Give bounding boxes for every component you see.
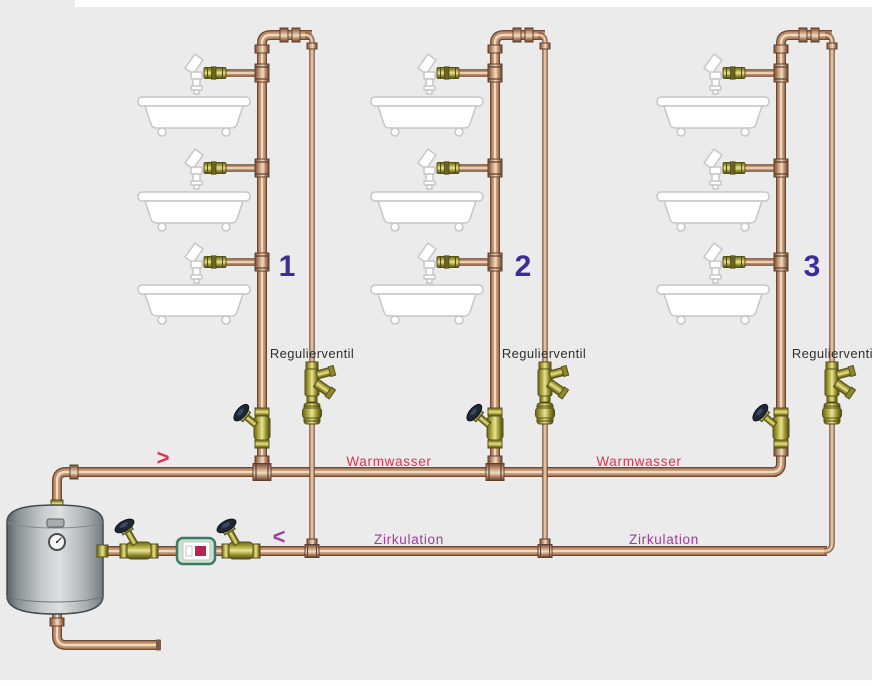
branch-tee-icon: [255, 253, 269, 271]
tap-connector-icon: [204, 67, 226, 79]
plumbing-diagram: 1 2 3 Regulierventil Regulierventil Regu…: [0, 0, 872, 686]
tap-connector-icon: [204, 256, 226, 268]
riser-number-3: 3: [804, 250, 821, 283]
union-coupling: [513, 28, 521, 42]
elbow-collar: [774, 45, 788, 53]
warmwasser-label-2: Warmwasser: [596, 454, 681, 469]
riser-number-1: 1: [279, 250, 296, 283]
elbow-collar: [827, 43, 837, 49]
riser-number-2: 2: [515, 250, 532, 283]
tap-connector-icon: [437, 256, 459, 268]
circulation-pump-icon: [177, 538, 215, 564]
branch-tee-icon: [488, 64, 502, 82]
elbow-collar: [307, 43, 317, 49]
top-border-strip: [75, 0, 872, 7]
union-coupling: [525, 28, 533, 42]
boiler-group: [7, 500, 108, 614]
gauge-center: [56, 541, 58, 543]
warmwasser-tee-icon: [253, 456, 271, 481]
union-coupling: [799, 28, 807, 42]
tap-connector-icon: [723, 256, 745, 268]
branch-tee-icon: [774, 253, 788, 271]
tap-connector-icon: [437, 67, 459, 79]
union-coupling: [280, 28, 288, 42]
regulierventil-label-3: Regulierventil: [792, 346, 872, 361]
tank-label-plate: [47, 519, 64, 527]
tap-connector-icon: [437, 162, 459, 174]
drain-pipe-end: [156, 640, 161, 651]
zirkulation-tee-icon: [305, 539, 319, 558]
zirkulation-label-2: Zirkulation: [629, 532, 699, 547]
branch-tee-icon: [488, 159, 502, 177]
branch-tee-icon: [774, 64, 788, 82]
bottom-border-strip: [0, 680, 872, 686]
elbow-collar: [488, 45, 502, 53]
tank-return-fitting: [97, 545, 108, 557]
regulierventil-label-1: Regulierventil: [270, 346, 354, 361]
plumbing-schematic-svg: 1 2 3 Regulierventil Regulierventil Regu…: [0, 0, 872, 686]
zirkulation-label-1: Zirkulation: [374, 532, 444, 547]
branch-tee-icon: [255, 64, 269, 82]
zirkulation-tee-icon: [538, 539, 552, 558]
branch-tee-icon: [774, 159, 788, 177]
warmwasser-flow-arrow: >: [157, 445, 170, 470]
warmwasser-label-1: Warmwasser: [346, 454, 431, 469]
warmwasser-tee-icon: [486, 456, 504, 481]
drain-coupling: [50, 618, 64, 626]
branch-tee-icon: [488, 253, 502, 271]
tap-connector-icon: [723, 67, 745, 79]
warmwasser-coupling: [70, 465, 78, 479]
tap-connector-icon: [204, 162, 226, 174]
elbow-collar: [774, 448, 788, 456]
union-coupling: [811, 28, 819, 42]
union-coupling: [292, 28, 300, 42]
elbow-collar: [255, 45, 269, 53]
zirkulation-flow-arrow: <: [273, 524, 286, 549]
elbow-collar: [540, 43, 550, 49]
tap-connector-icon: [723, 162, 745, 174]
regulierventil-label-2: Regulierventil: [502, 346, 586, 361]
branch-tee-icon: [255, 159, 269, 177]
